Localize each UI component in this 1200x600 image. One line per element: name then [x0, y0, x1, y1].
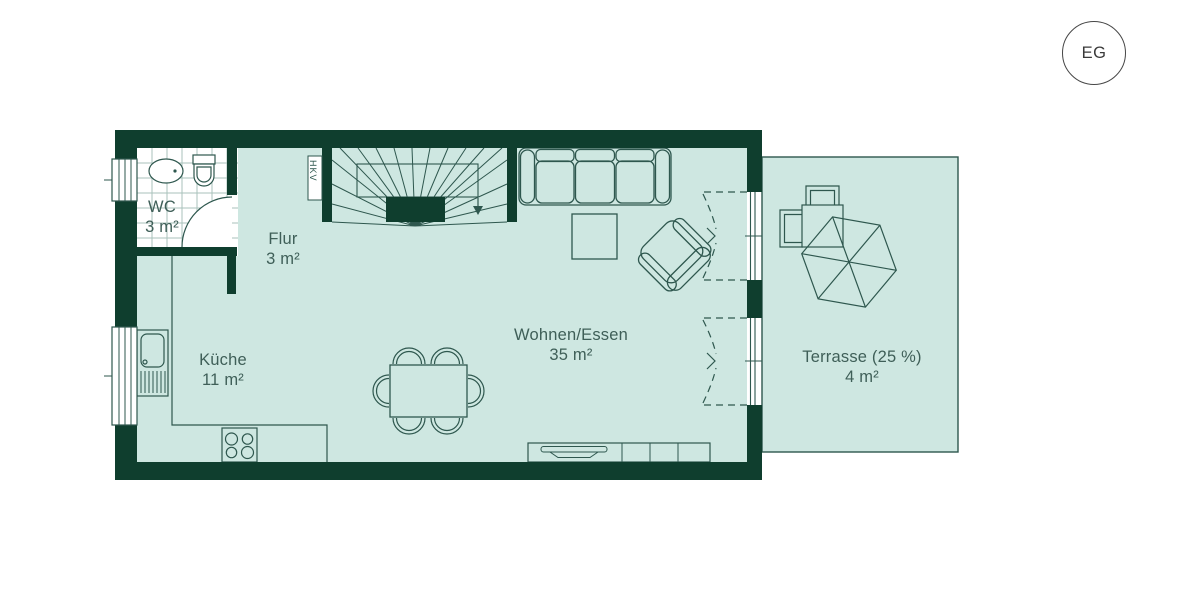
wall-stair-right [507, 148, 517, 222]
room-name: Wohnen/Essen [514, 325, 628, 345]
kitchen-window [104, 327, 137, 425]
room-name: Flur [266, 229, 300, 249]
floorplan-canvas: HKV [0, 0, 1200, 600]
wall-right-middle [747, 280, 762, 318]
room-area: 3 m² [145, 217, 179, 237]
room-label-kueche: Küche 11 m² [199, 350, 247, 390]
room-label-terrasse: Terrasse (25 %) 4 m² [802, 347, 921, 387]
room-area: 35 m² [514, 345, 628, 365]
floor-badge: EG [1062, 21, 1126, 85]
room-area: 11 m² [199, 370, 247, 390]
wc-toilet-icon [193, 155, 215, 186]
room-name: Terrasse (25 %) [802, 347, 921, 367]
wc-window [104, 159, 137, 201]
wall-kitchen-stub [227, 256, 236, 294]
wc-sink-icon [149, 159, 183, 183]
room-name: Küche [199, 350, 247, 370]
floor-badge-label: EG [1082, 44, 1107, 63]
wall-right-bottom [747, 405, 762, 480]
room-label-wohnen-essen: Wohnen/Essen 35 m² [514, 325, 628, 365]
room-label-flur: Flur 3 m² [266, 229, 300, 269]
wall-right-top [747, 130, 762, 192]
floorplan-drawing: HKV [0, 0, 1200, 600]
wall-wc-east [227, 148, 237, 195]
room-area: 3 m² [266, 249, 300, 269]
room-label-wc: WC 3 m² [145, 197, 179, 237]
terrace-floor [762, 157, 958, 452]
room-name: WC [145, 197, 179, 217]
hkv-closet: HKV [308, 156, 322, 200]
hkv-label: HKV [308, 160, 318, 182]
room-area: 4 m² [802, 367, 921, 387]
wall-stair-stub [386, 197, 445, 222]
wall-bottom [115, 462, 762, 480]
dining-table [390, 365, 467, 417]
wall-top [115, 130, 762, 148]
terrace-table [802, 205, 843, 247]
wall-stair-left [322, 148, 332, 222]
wall-wc-south [137, 247, 237, 256]
wc-sink-drain [173, 169, 176, 172]
